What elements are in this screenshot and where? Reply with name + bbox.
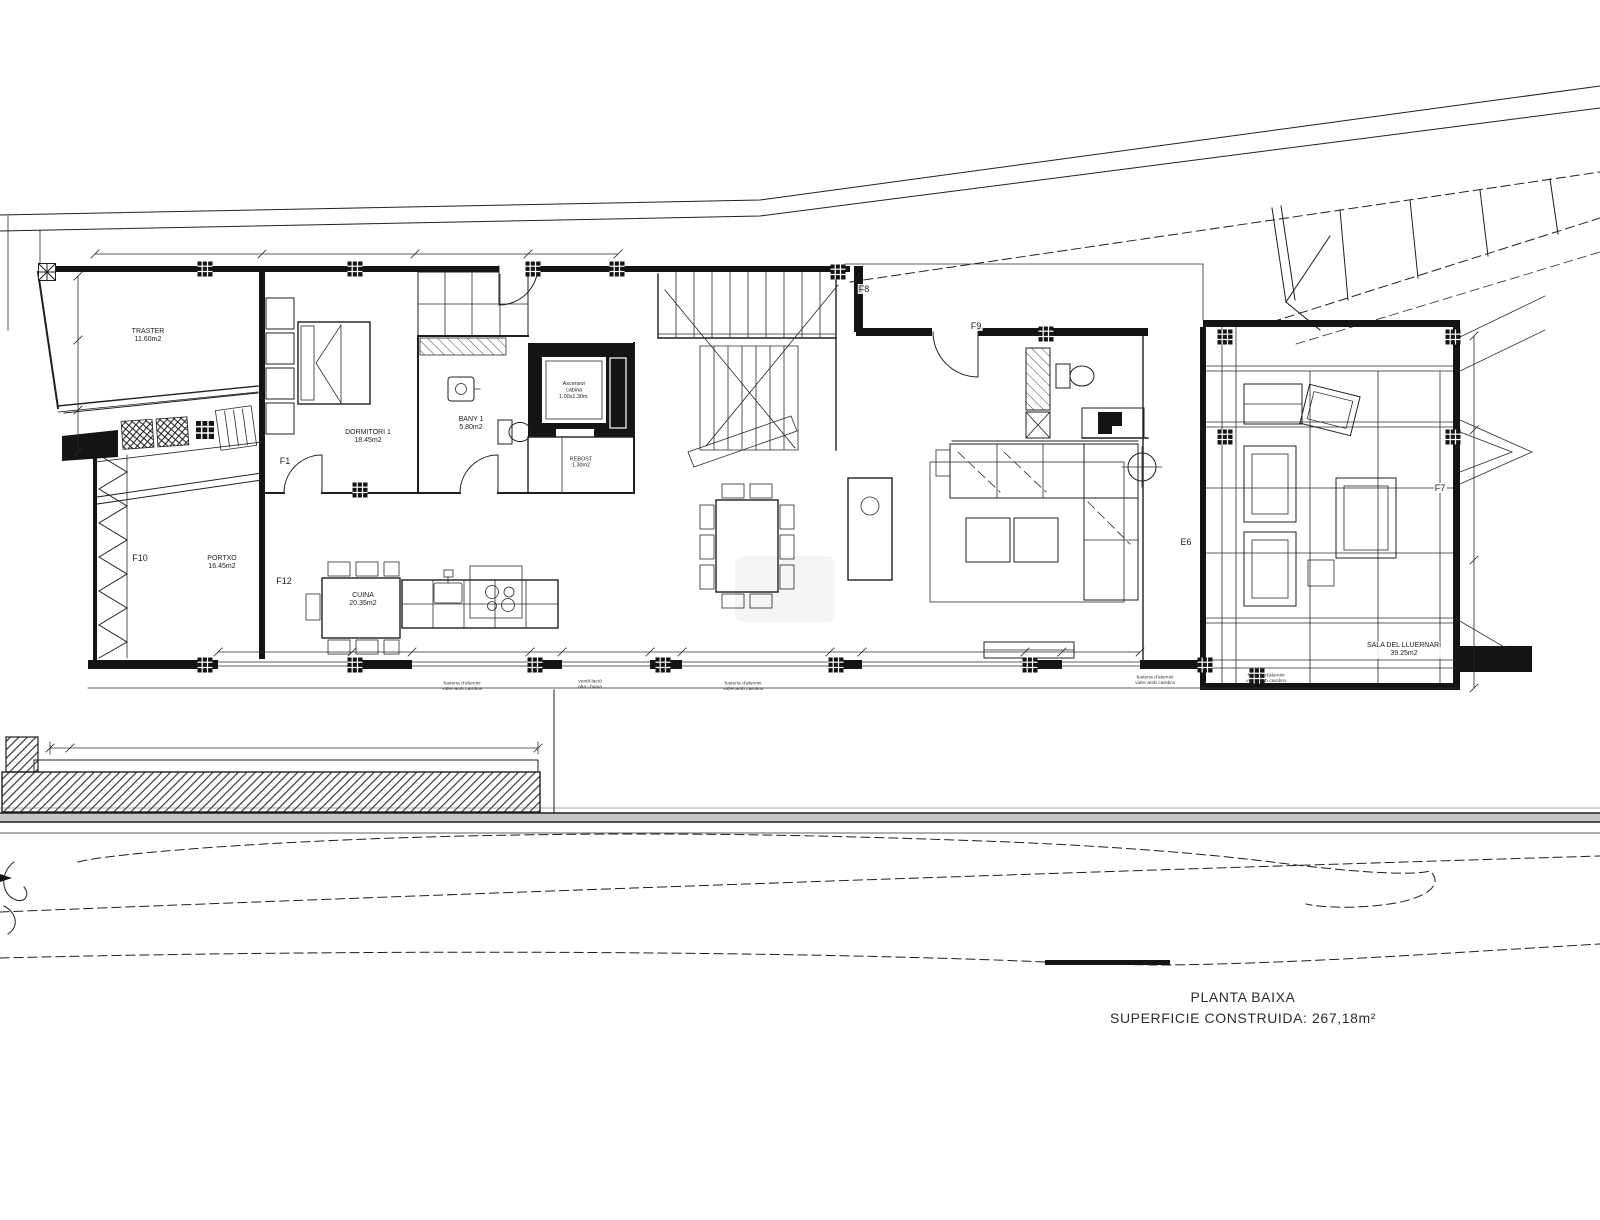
opening-label-f1: F1	[279, 456, 292, 466]
note-line: vidre amb cambra	[1246, 678, 1286, 684]
room-name: BANY 1	[459, 416, 484, 424]
staircase	[658, 272, 838, 467]
room-label-ascensor: Ascensor cabina 1.00x1.30m.	[558, 380, 589, 399]
plan-title-line2: SUPERFICIE CONSTRUIDA: 267,18m²	[1110, 1008, 1376, 1029]
kitchen-furniture	[306, 562, 558, 654]
room-label-dormitori: DORMITORI 1 18.45m2	[344, 429, 392, 446]
plan-title: PLANTA BAIXA SUPERFICIE CONSTRUIDA: 267,…	[1110, 987, 1376, 1029]
opening-label-f12: F12	[275, 576, 293, 586]
site-boundary-top	[0, 86, 1600, 344]
room-label-sala: SALA DEL LLUERNARI 39.25m2	[1366, 642, 1442, 659]
window-note-2: ventil·lació alta i baixa	[578, 678, 602, 689]
window-note-5: fusteria d'alumini vidre amb cambra	[1246, 672, 1286, 683]
room-area: 5.80m2	[459, 424, 484, 432]
window-note-3: fusteria d'alumini vidre amb cambra	[723, 680, 763, 691]
exterior-walls	[38, 264, 1460, 690]
floorplan-page: TRASTER 11.60m2 DORMITORI 1 18.45m2 BANY…	[0, 0, 1600, 1220]
room-area: 16.45m2	[207, 563, 236, 571]
room-label-cuina: CUINA 20.35m2	[348, 592, 377, 609]
room-area: 1.30m2	[570, 462, 592, 468]
window-note-4: fusteria d'alumini vidre amb cambra	[1135, 674, 1175, 685]
room-label-traster: TRASTER 11.60m2	[131, 328, 166, 345]
room-area: 20.35m2	[349, 600, 376, 608]
window-note-1: fusteria d'alumini vidre amb cambra	[442, 680, 482, 691]
room-name: DORMITORI 1	[345, 429, 391, 437]
room-name: SALA DEL LLUERNARI	[1367, 642, 1441, 650]
terrain-contours	[0, 834, 1600, 965]
opening-label-f8: F8	[858, 284, 871, 294]
room-label-bany: BANY 1 5.80m2	[458, 416, 485, 433]
room-label-portxo: PORTXO 16.45m2	[206, 555, 237, 572]
opening-label-f7: F7	[1434, 483, 1447, 493]
note-line: vidre amb cambra	[442, 686, 482, 692]
room-area: 39.25m2	[1367, 650, 1441, 658]
room-name: TRASTER	[132, 328, 165, 336]
opening-label-e6: E6	[1179, 537, 1192, 547]
wc-room	[1026, 348, 1094, 438]
note-line: vidre amb cambra	[1135, 680, 1175, 686]
opening-label-f9: F9	[970, 321, 983, 331]
room-name: CUINA	[349, 592, 376, 600]
room-label-rebost: REBOST 1.30m2	[569, 456, 593, 469]
room-name: PORTXO	[207, 555, 236, 563]
ascensor-line3: 1.00x1.30m.	[559, 393, 589, 399]
watermark	[735, 556, 835, 622]
note-line: alta i baixa	[578, 684, 602, 690]
room-area: 18.45m2	[345, 437, 391, 445]
room-area: 11.60m2	[132, 336, 165, 344]
note-line: vidre amb cambra	[723, 686, 763, 692]
dimension-lines	[74, 250, 1478, 692]
sala-lluernari	[1206, 296, 1545, 683]
bedroom-furniture	[266, 298, 370, 434]
living-room-furniture	[930, 408, 1162, 658]
opening-label-f10: F10	[131, 553, 149, 563]
driveway-hatch	[2, 690, 554, 812]
plan-title-line1: PLANTA BAIXA	[1110, 987, 1376, 1008]
